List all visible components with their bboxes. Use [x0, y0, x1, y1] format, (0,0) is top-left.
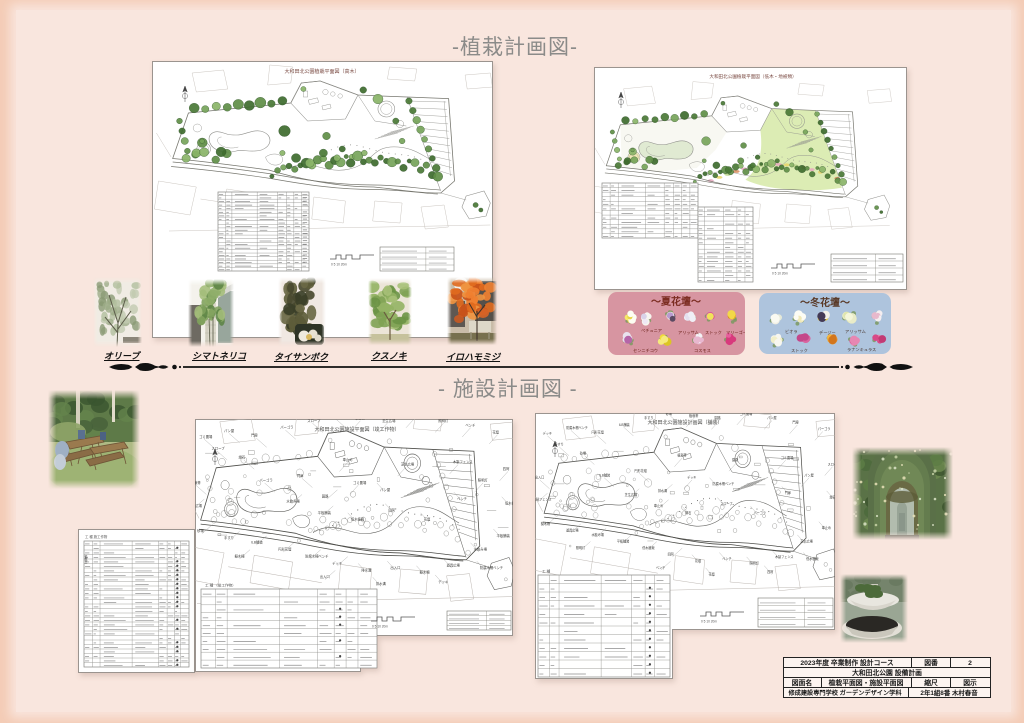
svg-text:低木植栽: 低木植栽 — [351, 517, 365, 522]
svg-text:排水溝: 排水溝 — [361, 567, 371, 572]
svg-text:アリッサム: アリッサム — [678, 330, 699, 336]
svg-text:ILB舗装: ILB舗装 — [619, 422, 631, 427]
svg-text:ILB舗装: ILB舗装 — [251, 540, 263, 545]
svg-text:排水溝: 排水溝 — [658, 488, 668, 493]
svg-text:パーゴラ: パーゴラ — [818, 426, 830, 431]
svg-text:円形花壇: 円形花壇 — [634, 468, 647, 473]
svg-text:門扉: 門扉 — [793, 419, 800, 424]
svg-text:ゴミ置場: ゴミ置場 — [353, 480, 367, 485]
svg-text:円形花壇: 円形花壇 — [278, 546, 292, 551]
svg-text:ゴミ置場: ゴミ置場 — [781, 455, 794, 460]
svg-text:門扉: 門扉 — [251, 433, 258, 438]
svg-text:縁石: 縁石 — [685, 510, 692, 515]
svg-text:照明灯: 照明灯 — [438, 419, 448, 423]
svg-text:手すり: 手すり — [644, 415, 653, 420]
svg-text:門扉: 門扉 — [297, 473, 304, 478]
svg-text:大和田北公園施設計画図（舗装）: 大和田北公園施設計画図（舗装） — [647, 419, 722, 426]
svg-text:修成建設専門学校 ガーデンデザイン学科: 修成建設専門学校 ガーデンデザイン学科 — [787, 689, 902, 697]
svg-text:花壇: 花壇 — [492, 429, 499, 434]
svg-text:スロープ: スロープ — [307, 419, 321, 423]
svg-text:擬木柵: 擬木柵 — [541, 521, 551, 526]
svg-text:水飲み場: 水飲み場 — [474, 546, 488, 551]
svg-text:遊具広場: 遊具広場 — [566, 527, 579, 532]
svg-text:図示: 図示 — [963, 678, 977, 687]
svg-text:手すり: 手すり — [554, 441, 563, 446]
svg-text:～夏花壇～: ～夏花壇～ — [651, 295, 701, 308]
svg-text:工 種 施工作物: 工 種 施工作物 — [85, 534, 108, 539]
svg-text:0 5 10 20m: 0 5 10 20m — [372, 625, 388, 629]
svg-text:植栽帯: 植栽帯 — [195, 480, 201, 485]
svg-text:植栽帯: 植栽帯 — [689, 413, 699, 418]
svg-text:円形花壇: 円形花壇 — [591, 429, 604, 434]
svg-text:水飲み場: 水飲み場 — [286, 498, 300, 503]
svg-text:花壇: 花壇 — [709, 571, 716, 576]
svg-text:スロープ: スロープ — [720, 501, 733, 506]
svg-text:0 5 10 20m: 0 5 10 20m — [331, 263, 347, 267]
svg-text:図面名: 図面名 — [792, 678, 812, 687]
svg-text:車止め: 車止め — [343, 457, 353, 462]
svg-text:四阿: 四阿 — [767, 569, 774, 574]
svg-text:ペチュニア: ペチュニア — [641, 328, 662, 334]
svg-text:大和田北公園植栽平面図（高木）: 大和田北公園植栽平面図（高木） — [284, 68, 359, 75]
svg-text:四阿: 四阿 — [503, 466, 510, 471]
svg-text:パン屋: パン屋 — [224, 428, 235, 433]
svg-text:ベンチ: ベンチ — [465, 422, 475, 427]
svg-text:木製フェンス: 木製フェンス — [775, 554, 794, 559]
svg-text:パン屋: パン屋 — [804, 472, 814, 477]
svg-text:工 種 （竣工作物）: 工 種 （竣工作物） — [205, 583, 236, 588]
svg-text:ゴミ置場: ゴミ置場 — [740, 413, 753, 416]
svg-text:コスモス: コスモス — [694, 348, 711, 353]
svg-text:工 種: 工 種 — [542, 569, 551, 574]
svg-text:防腐木柵ベンチ: 防腐木柵ベンチ — [566, 425, 588, 430]
svg-text:砂場: 砂場 — [580, 450, 587, 455]
svg-text:植栽平面図・施設平面図: 植栽平面図・施設平面図 — [828, 678, 904, 687]
svg-text:アリッサム: アリッサム — [845, 329, 866, 335]
svg-text:防腐木柵ベンチ: 防腐木柵ベンチ — [480, 565, 504, 570]
svg-text:パーゴラ: パーゴラ — [753, 510, 765, 515]
svg-text:大和田北公園植栽平面図（低木・地被類）: 大和田北公園植栽平面図（低木・地被類） — [709, 73, 796, 80]
svg-text:園路: 園路 — [714, 415, 721, 420]
svg-text:低木植栽: 低木植栽 — [806, 556, 819, 561]
svg-text:センニチコウ: センニチコウ — [633, 347, 658, 353]
svg-text:芝生広場: 芝生広場 — [625, 492, 638, 497]
svg-text:木製フェンス: 木製フェンス — [453, 459, 473, 464]
svg-text:水飲み場: 水飲み場 — [591, 532, 604, 537]
svg-text:パーゴラ: パーゴラ — [280, 425, 294, 430]
svg-text:平板舗装: 平板舗装 — [497, 533, 511, 538]
svg-text:パン屋: パン屋 — [767, 415, 777, 420]
svg-text:大和田北公園施設平面図（竣工作物）: 大和田北公園施設平面図（竣工作物） — [314, 426, 399, 433]
svg-text:2: 2 — [968, 660, 972, 667]
svg-text:大和田北公園 設備計画: 大和田北公園 設備計画 — [852, 668, 922, 677]
svg-text:照明灯: 照明灯 — [478, 477, 488, 482]
svg-text:ストック: ストック — [791, 348, 808, 354]
svg-text:花壇: 花壇 — [695, 558, 702, 563]
svg-text:ラナンキュラス: ラナンキュラス — [847, 347, 876, 353]
svg-text:出入口: 出入口 — [535, 474, 544, 479]
svg-text:スロープ: スロープ — [212, 445, 226, 450]
svg-text:デッキ: デッキ — [438, 579, 448, 584]
svg-text:スロープ: スロープ — [828, 461, 835, 466]
svg-text:植栽帯: 植栽帯 — [677, 452, 687, 457]
svg-text:デージー: デージー — [819, 329, 836, 336]
svg-text:平板舗装: 平板舗装 — [617, 538, 630, 543]
svg-text:排水溝: 排水溝 — [376, 581, 386, 586]
svg-text:遊具広場: 遊具広場 — [447, 563, 461, 568]
svg-text:車止め: 車止め — [822, 525, 831, 530]
svg-text:芝生広場: 芝生広場 — [800, 538, 813, 543]
svg-text:マリーゴールド: マリーゴールド — [726, 329, 745, 336]
svg-text:植栽工: 植栽工 — [84, 554, 88, 564]
svg-text:防腐木柵ベンチ: 防腐木柵ベンチ — [305, 553, 329, 558]
svg-text:園路: 園路 — [322, 494, 329, 499]
svg-text:縮尺: 縮尺 — [924, 678, 938, 687]
svg-text:擬木柵: 擬木柵 — [420, 569, 430, 574]
svg-text:防腐木柵ベンチ: 防腐木柵ベンチ — [712, 481, 734, 486]
svg-text:園路: 園路 — [732, 457, 739, 462]
svg-text:出入口: 出入口 — [390, 565, 400, 570]
svg-text:ビオラ: ビオラ — [785, 328, 798, 335]
svg-text:図番: 図番 — [924, 658, 938, 667]
svg-text:縁石: 縁石 — [239, 454, 246, 459]
svg-text:デッキ: デッキ — [332, 560, 342, 565]
svg-text:ベンチ: ベンチ — [656, 565, 666, 570]
svg-text:ストック: ストック — [705, 330, 722, 336]
svg-text:門扉: 門扉 — [785, 490, 792, 495]
svg-text:デッキ: デッキ — [543, 430, 552, 435]
svg-text:2年1組8番 木村春音: 2年1組8番 木村春音 — [920, 688, 978, 697]
svg-text:低木植栽: 低木植栽 — [642, 545, 655, 550]
svg-text:芝生広場: 芝生広場 — [401, 461, 415, 466]
svg-text:照明灯: 照明灯 — [750, 560, 760, 565]
svg-text:～冬花壇～: ～冬花壇～ — [800, 296, 850, 309]
svg-text:ベンチ: ベンチ — [722, 556, 732, 561]
svg-text:遊具広場: 遊具広場 — [195, 503, 202, 508]
svg-text:照明灯: 照明灯 — [576, 545, 586, 550]
svg-text:0 5 10 20m: 0 5 10 20m — [701, 620, 717, 624]
svg-text:平板舗装: 平板舗装 — [318, 510, 332, 515]
svg-text:パン屋: パン屋 — [380, 487, 391, 492]
svg-text:芝生広場: 芝生広場 — [382, 419, 396, 423]
svg-text:ゴミ置場: ゴミ置場 — [199, 434, 213, 439]
svg-text:2023年度 卒業制作 設計コース: 2023年度 卒業制作 設計コース — [800, 658, 894, 667]
svg-text:砂場: 砂場 — [666, 413, 673, 416]
svg-text:砂場: 砂場 — [197, 528, 204, 533]
svg-text:擬木柵: 擬木柵 — [234, 553, 244, 558]
svg-text:出入口: 出入口 — [320, 574, 330, 579]
svg-text:ベンチ: ベンチ — [457, 496, 467, 501]
svg-text:車止め: 車止め — [355, 419, 365, 421]
svg-text:ILB舗装: ILB舗装 — [599, 472, 611, 477]
svg-text:パーゴラ: パーゴラ — [259, 477, 273, 482]
svg-text:デッキ: デッキ — [687, 474, 696, 479]
svg-text:0 5 10 20m: 0 5 10 20m — [772, 272, 788, 276]
